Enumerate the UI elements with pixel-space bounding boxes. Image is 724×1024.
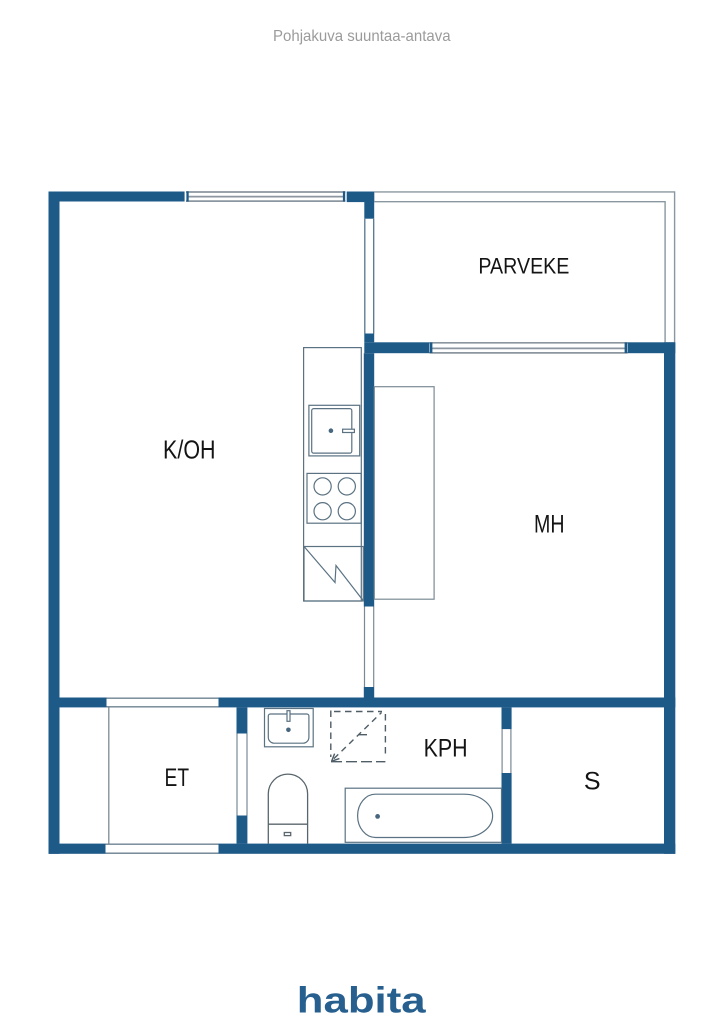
svg-text:K/OH: K/OH <box>163 435 216 465</box>
svg-text:PARVEKE: PARVEKE <box>478 254 569 279</box>
svg-text:ET: ET <box>165 764 190 792</box>
svg-text:habita: habita <box>297 979 427 1020</box>
svg-text:Pohjakuva suuntaa-antava: Pohjakuva suuntaa-antava <box>273 28 451 45</box>
svg-text:MH: MH <box>534 511 565 539</box>
svg-text:S: S <box>584 768 601 796</box>
svg-text:KPH: KPH <box>424 735 468 763</box>
